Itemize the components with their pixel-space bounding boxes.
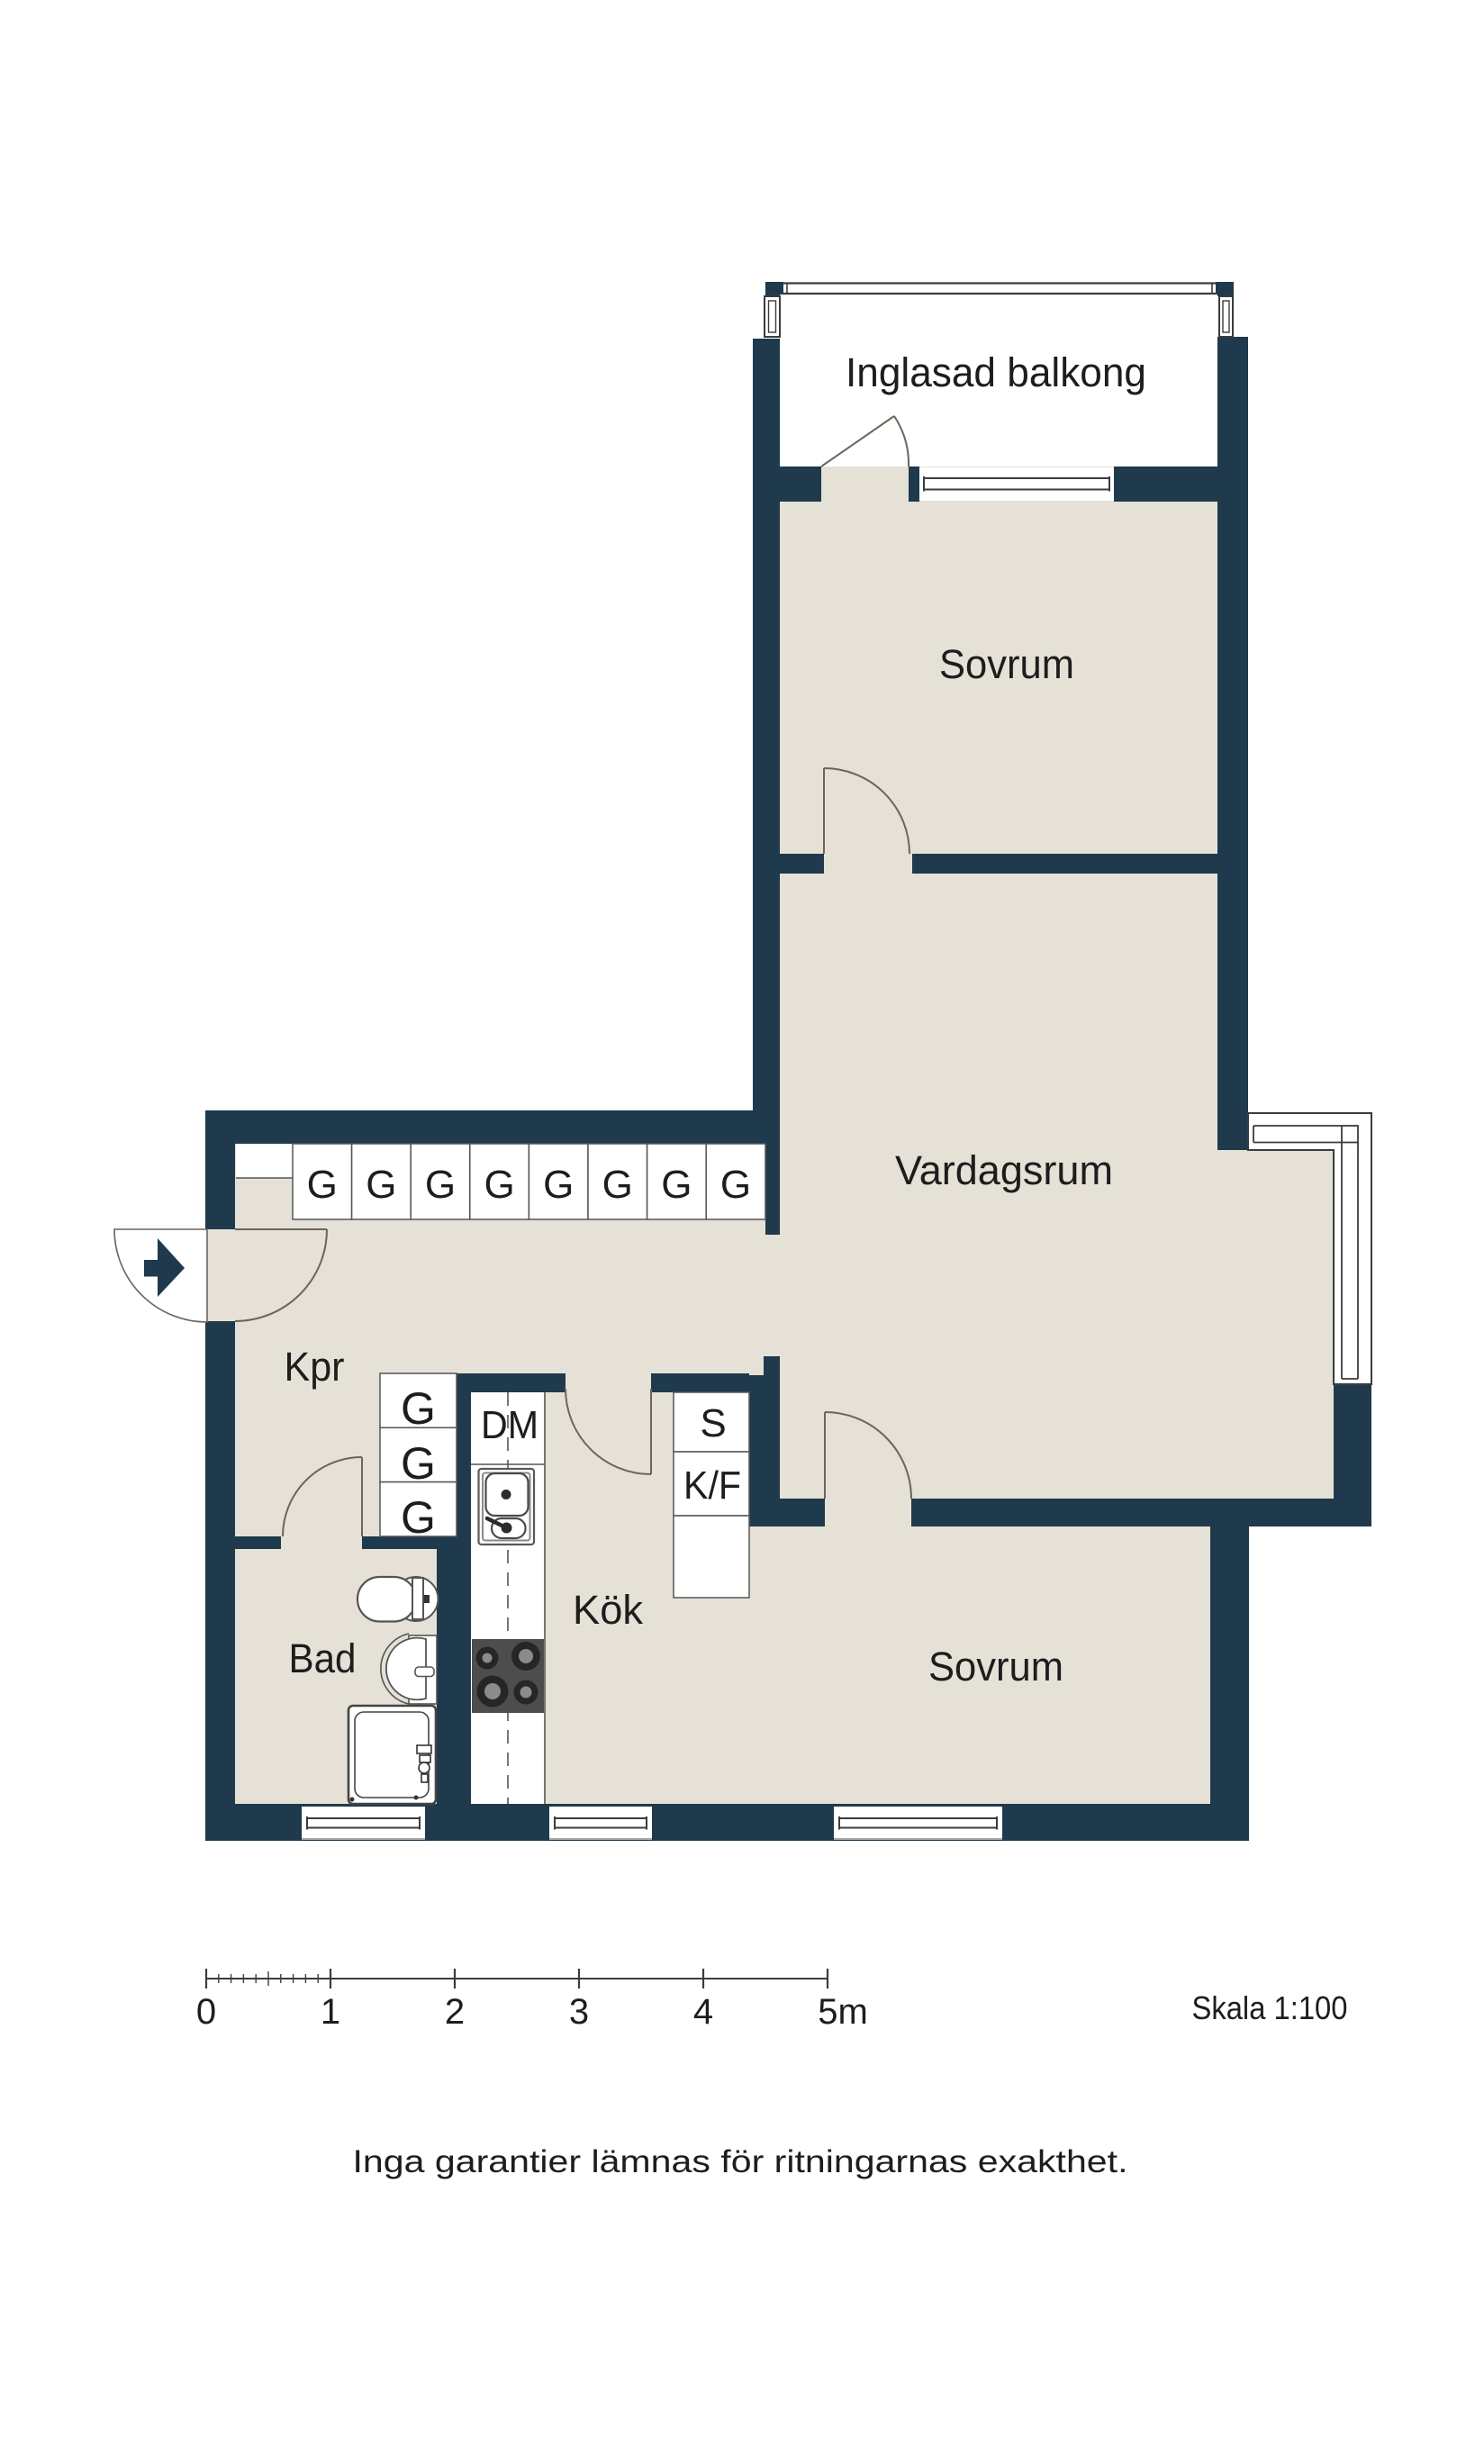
svg-text:S: S <box>700 1401 726 1445</box>
svg-text:Skala 1:100: Skala 1:100 <box>1192 1989 1348 2026</box>
svg-text:G: G <box>366 1163 396 1207</box>
svg-text:4: 4 <box>693 1992 713 2032</box>
svg-text:5m: 5m <box>818 1992 868 2032</box>
svg-text:3: 3 <box>569 1992 589 2032</box>
svg-text:G: G <box>401 1492 436 1543</box>
svg-text:Vardagsrum: Vardagsrum <box>895 1147 1113 1193</box>
svg-text:Inglasad balkong: Inglasad balkong <box>846 349 1146 395</box>
svg-text:Bad: Bad <box>289 1635 357 1681</box>
svg-text:Kpr: Kpr <box>285 1344 345 1390</box>
svg-text:G: G <box>307 1163 338 1207</box>
svg-text:G: G <box>661 1163 692 1207</box>
svg-text:0: 0 <box>196 1992 216 2032</box>
svg-text:G: G <box>401 1438 436 1489</box>
svg-text:1: 1 <box>321 1992 340 2032</box>
svg-text:2: 2 <box>445 1992 465 2032</box>
svg-text:G: G <box>484 1163 514 1207</box>
svg-text:G: G <box>425 1163 456 1207</box>
svg-text:Sovrum: Sovrum <box>939 641 1074 687</box>
svg-text:DM: DM <box>481 1403 538 1447</box>
svg-text:G: G <box>401 1383 436 1434</box>
svg-text:G: G <box>720 1163 751 1207</box>
svg-text:Inga garantier lämnas för ritn: Inga garantier lämnas för ritningarnas e… <box>353 2144 1128 2179</box>
svg-text:Sovrum: Sovrum <box>928 1644 1063 1689</box>
svg-text:G: G <box>602 1163 633 1207</box>
svg-text:Kök: Kök <box>573 1587 643 1633</box>
svg-text:G: G <box>543 1163 574 1207</box>
svg-text:K/F: K/F <box>683 1463 741 1508</box>
